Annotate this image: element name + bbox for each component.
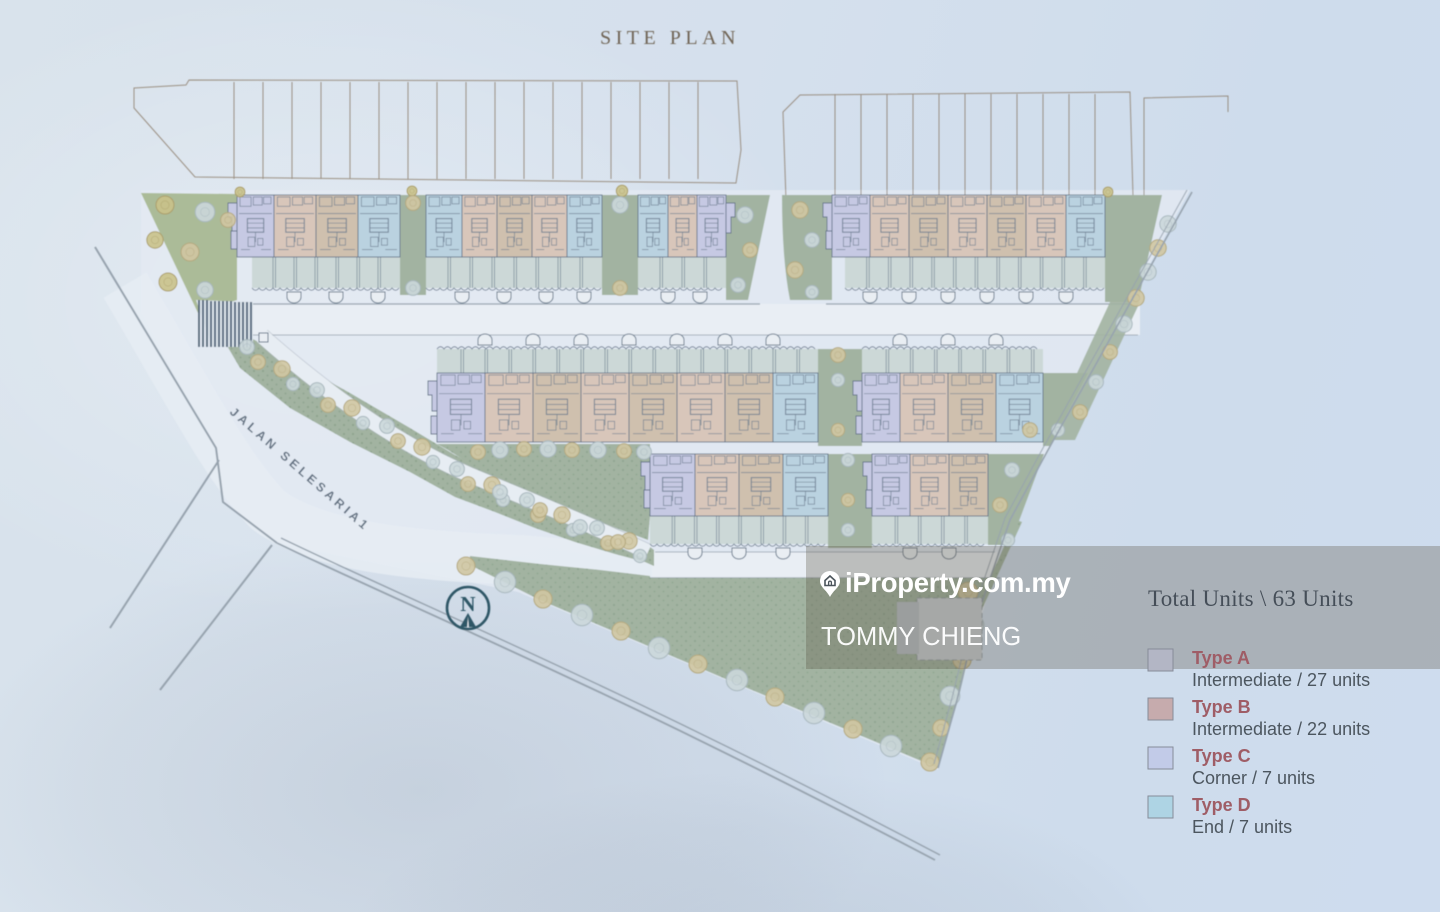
svg-text:SITE PLAN: SITE PLAN: [600, 27, 740, 49]
svg-text:N: N: [460, 592, 475, 616]
svg-text:Type C: Type C: [1192, 746, 1251, 766]
svg-text:Corner / 7 units: Corner / 7 units: [1192, 768, 1315, 788]
svg-text:Type D: Type D: [1192, 795, 1251, 815]
svg-text:Total Units \ 63 Units: Total Units \ 63 Units: [1148, 586, 1354, 611]
svg-text:Intermediate / 27 units: Intermediate / 27 units: [1192, 670, 1370, 690]
svg-text:Type B: Type B: [1192, 697, 1251, 717]
svg-text:End / 7 units: End / 7 units: [1192, 817, 1292, 837]
svg-text:Intermediate / 22 units: Intermediate / 22 units: [1192, 719, 1370, 739]
svg-text:Type A: Type A: [1192, 648, 1250, 668]
svg-text:TOMMY CHIENG: TOMMY CHIENG: [821, 623, 1021, 651]
svg-text:iProperty.com.my: iProperty.com.my: [845, 567, 1071, 598]
